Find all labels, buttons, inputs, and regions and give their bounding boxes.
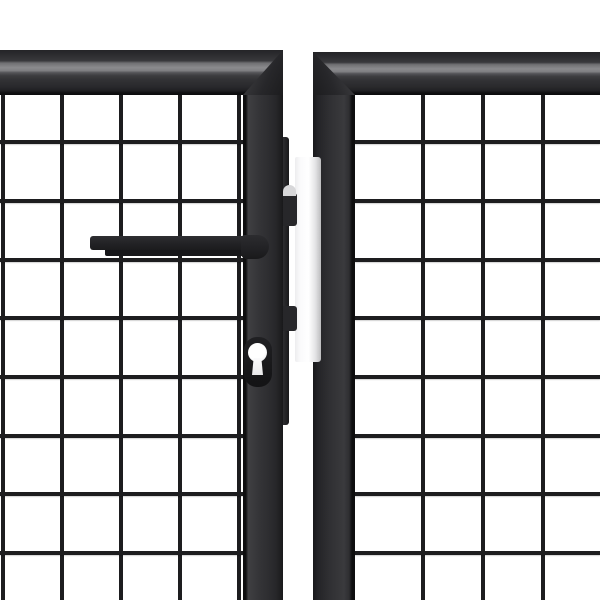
mesh-wire-horizontal (355, 140, 600, 144)
left-mesh-panel (0, 95, 243, 600)
mesh-wire-vertical (237, 95, 241, 600)
mesh-wire-vertical (178, 95, 182, 600)
mesh-wire-horizontal (0, 258, 243, 262)
mesh-wire-horizontal (355, 199, 600, 203)
mesh-wire-horizontal (0, 375, 243, 379)
lock-box (283, 137, 289, 425)
miter-corner-left (313, 52, 355, 95)
mesh-wire-horizontal (0, 492, 243, 496)
keyhole-slot (252, 358, 263, 375)
mesh-wire-horizontal (355, 316, 600, 320)
mesh-wire-horizontal (355, 434, 600, 438)
mesh-wire-vertical (481, 95, 485, 600)
mesh-wire-horizontal (355, 492, 600, 496)
right-leaf-top-rail (313, 52, 600, 95)
mesh-wire-vertical (421, 95, 425, 600)
mesh-wire-vertical (1, 95, 5, 600)
handle-neck (241, 235, 269, 259)
latch-tab-lower (283, 306, 297, 331)
miter-corner-right (243, 50, 283, 95)
left-leaf-stile (243, 50, 283, 600)
latch-tab-upper (283, 193, 297, 226)
right-mesh-panel (355, 95, 600, 600)
mesh-wire-horizontal (355, 551, 600, 555)
mesh-wire-horizontal (0, 140, 243, 144)
mesh-wire-vertical (119, 95, 123, 600)
mesh-wire-horizontal (0, 316, 243, 320)
lever-handle (90, 236, 253, 250)
lock-keeper-plate (295, 157, 321, 362)
mesh-wire-horizontal (0, 551, 243, 555)
mesh-wire-horizontal (0, 199, 243, 203)
mesh-wire-vertical (60, 95, 64, 600)
left-leaf-top-rail (0, 50, 283, 95)
mesh-wire-horizontal (0, 434, 243, 438)
mesh-wire-vertical (541, 95, 545, 600)
mesh-wire-horizontal (355, 258, 600, 262)
latch-tab-cap (283, 185, 296, 196)
product-photo (0, 0, 600, 600)
mesh-wire-horizontal (355, 375, 600, 379)
